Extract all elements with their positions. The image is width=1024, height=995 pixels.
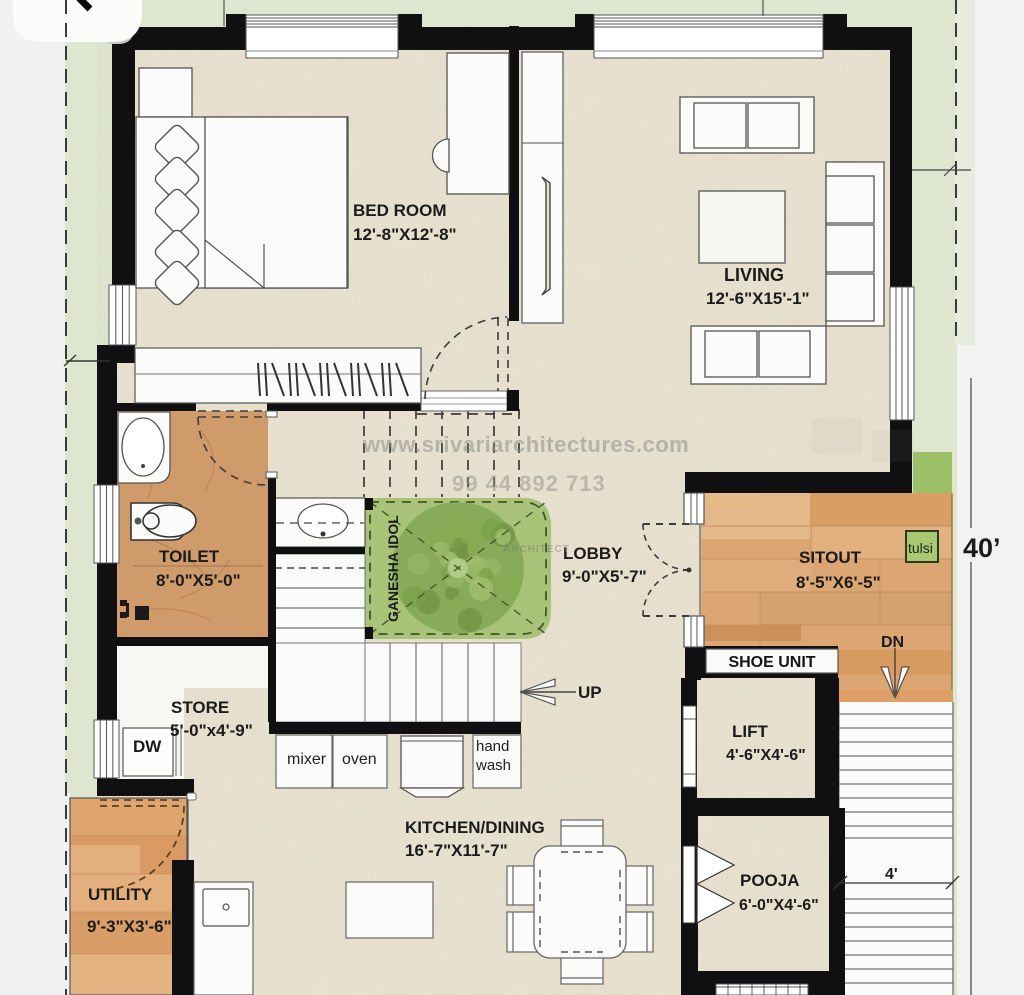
svg-text:ARCHITECT: ARCHITECT xyxy=(503,544,570,555)
svg-text:12'-6"X15'-1": 12'-6"X15'-1" xyxy=(706,289,810,308)
svg-text:LIFT: LIFT xyxy=(732,722,768,741)
svg-text:KITCHEN/DINING: KITCHEN/DINING xyxy=(405,818,545,837)
svg-text:4'-6"X4'-6": 4'-6"X4'-6" xyxy=(726,747,806,764)
svg-text:8'-5"X6'-5": 8'-5"X6'-5" xyxy=(796,573,881,592)
svg-text:www.srivariarchitectures.com: www.srivariarchitectures.com xyxy=(362,432,689,457)
svg-text:tulsi: tulsi xyxy=(908,540,933,556)
svg-text:GANESHA IDOL: GANESHA IDOL xyxy=(385,515,401,622)
svg-text:9'-0"X5'-7": 9'-0"X5'-7" xyxy=(562,567,647,586)
svg-text:99 44 892 713: 99 44 892 713 xyxy=(452,471,606,496)
svg-text:UP: UP xyxy=(578,683,602,702)
svg-text:16'-7"X11'-7": 16'-7"X11'-7" xyxy=(405,841,508,860)
svg-text:6'-0"X4'-6": 6'-0"X4'-6" xyxy=(739,897,819,914)
svg-text:STORE: STORE xyxy=(171,698,229,717)
svg-text:SITOUT: SITOUT xyxy=(799,548,862,567)
svg-text:LOBBY: LOBBY xyxy=(563,544,623,563)
svg-text:SHOE UNIT: SHOE UNIT xyxy=(728,654,815,671)
svg-text:9'-3"X3'-6": 9'-3"X3'-6" xyxy=(87,917,172,936)
svg-text:DN: DN xyxy=(881,634,904,651)
svg-text:12'-8"X12'-8": 12'-8"X12'-8" xyxy=(353,225,457,244)
svg-text:hand: hand xyxy=(476,738,509,755)
svg-text:POOJA: POOJA xyxy=(740,871,800,890)
svg-text:40’: 40’ xyxy=(963,533,1001,563)
svg-text:8'-0"X5'-0": 8'-0"X5'-0" xyxy=(156,571,241,590)
svg-text:BED ROOM: BED ROOM xyxy=(353,201,447,220)
svg-text:oven: oven xyxy=(342,751,377,768)
svg-text:mixer: mixer xyxy=(287,751,327,768)
svg-text:5'-0"x4'-9": 5'-0"x4'-9" xyxy=(170,721,253,740)
svg-text:4': 4' xyxy=(885,866,898,883)
svg-text:DW: DW xyxy=(133,737,162,756)
svg-text:UTILITY: UTILITY xyxy=(88,885,153,904)
svg-text:wash: wash xyxy=(475,757,511,774)
svg-text:LIVING: LIVING xyxy=(724,265,784,285)
svg-text:TOILET: TOILET xyxy=(159,547,220,566)
